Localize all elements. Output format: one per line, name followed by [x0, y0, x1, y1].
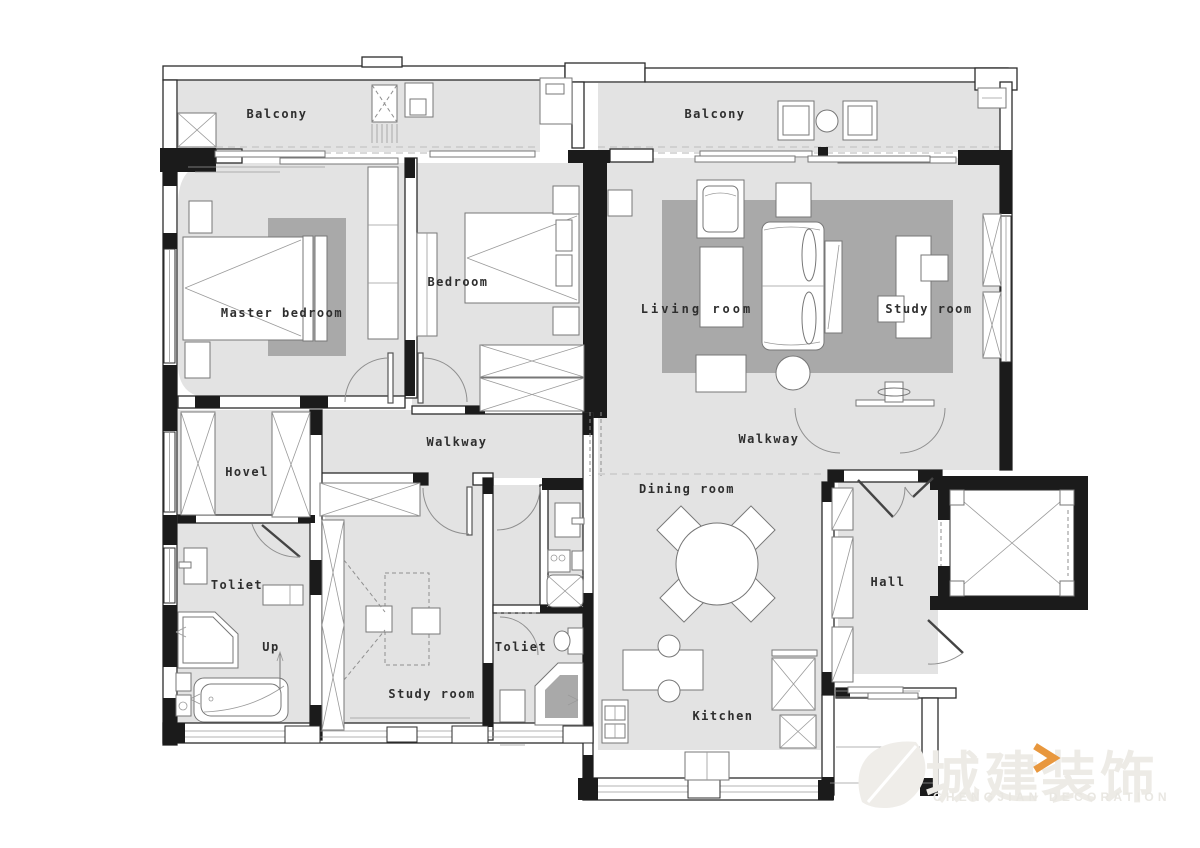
faucet: [572, 518, 584, 524]
dining-table: [676, 523, 758, 605]
room-label-bedroom: Bedroom: [427, 275, 488, 289]
master-wardrobe: [368, 167, 398, 339]
room-label-hall: Hall: [871, 575, 906, 589]
burner: [658, 680, 680, 702]
room-label-toilet-middle: Toliet: [495, 640, 547, 654]
room-label-dining-room: Dining room: [639, 482, 735, 496]
wall-bedroom-living: [583, 152, 607, 418]
room-label-kitchen: Kitchen: [692, 709, 753, 723]
top-wall-left: [163, 66, 565, 80]
room-label-walkway-left: Walkway: [426, 435, 487, 449]
master-door-leaf: [388, 353, 393, 403]
side-table: [776, 183, 811, 217]
corridor-floor: [493, 485, 540, 607]
floor-plan-page: Balcony Balcony Master bedroom Bedroom L…: [0, 0, 1200, 848]
pillow: [556, 255, 572, 286]
watermark: 城建 装饰 CHENGJIAN DECORATION: [858, 742, 1170, 810]
nightstand: [553, 186, 579, 214]
top-wall-tee: [565, 63, 645, 82]
fixture: [572, 551, 583, 570]
elevator-wall-right: [1074, 476, 1088, 610]
cabinet: [263, 585, 303, 605]
room-label-walkway-right: Walkway: [738, 432, 799, 446]
media-box: [885, 382, 903, 402]
coffee-table: [776, 356, 810, 390]
basin: [548, 550, 570, 572]
tv-console: [695, 156, 795, 162]
top-wall-tee-stem: [572, 82, 584, 148]
pillow: [556, 220, 572, 251]
headboard: [303, 236, 313, 341]
balcony-table: [816, 110, 838, 132]
elevator-wall-top: [930, 476, 1088, 490]
nightstand: [189, 201, 212, 233]
room-label-living-room: Living room: [641, 302, 753, 316]
fixture: [176, 695, 191, 716]
elevator-wall-bottom: [930, 596, 1088, 610]
balcony-left-floor: [178, 72, 540, 152]
duct-box: [405, 83, 433, 117]
room-label-study-room-bottom: Study room: [388, 687, 475, 701]
toilet-bowl: [554, 631, 570, 651]
wall-table: [608, 190, 632, 216]
floor-plan-drawing: Balcony Balcony Master bedroom Bedroom L…: [0, 0, 1200, 848]
faucet: [179, 562, 191, 568]
top-wall-jut: [362, 57, 402, 67]
room-label-toilet-left: Toliet: [211, 578, 263, 592]
duct-box-2: [540, 78, 572, 124]
desk-cabinet: [921, 255, 948, 281]
room-label-up: Up: [262, 640, 279, 654]
study-desk: [896, 236, 931, 338]
chair: [412, 608, 440, 634]
study-door-leaf: [467, 487, 472, 535]
bottom-wall-left: [163, 723, 593, 743]
nightstand: [185, 342, 210, 378]
room-label-master-bedroom: Master bedroom: [221, 306, 343, 320]
watermark-tagline: CHENGJIAN DECORATION: [933, 790, 1171, 804]
burner: [658, 635, 680, 657]
master-bed: [183, 237, 303, 340]
console-table: [696, 355, 746, 392]
bedroom-door-leaf: [418, 353, 423, 403]
room-label-hovel: Hovel: [225, 465, 269, 479]
nightstand: [553, 307, 579, 335]
fixture: [176, 673, 191, 691]
room-label-balcony-right: Balcony: [684, 107, 745, 121]
washer: [500, 690, 525, 722]
room-label-balcony-left: Balcony: [246, 107, 307, 121]
top-wall-right: [645, 68, 1008, 82]
chair: [366, 606, 392, 632]
bookshelf-tall: [322, 520, 344, 730]
room-label-study-room-right: Study room: [885, 302, 972, 316]
